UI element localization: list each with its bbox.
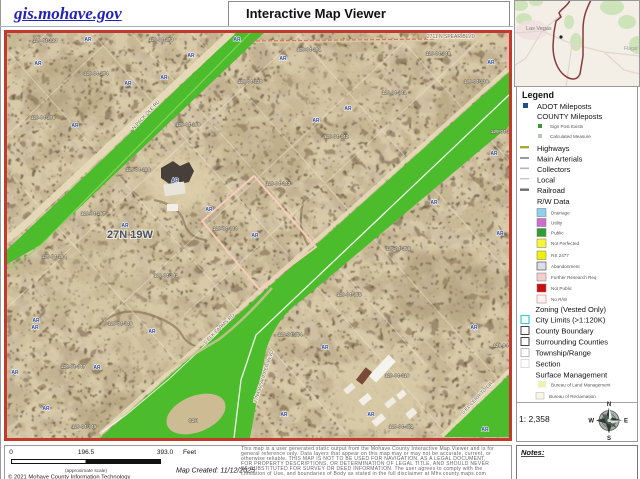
svg-text:Legend: Legend xyxy=(522,90,554,100)
svg-text:AR: AR xyxy=(171,178,179,184)
svg-text:0: 0 xyxy=(9,449,13,456)
svg-text:Highways: Highways xyxy=(537,144,570,153)
svg-text:129-04-342: 129-04-342 xyxy=(324,134,349,140)
svg-text:Zoning (Vested Only): Zoning (Vested Only) xyxy=(536,305,607,314)
svg-text:Bureau of Reclamation: Bureau of Reclamation xyxy=(549,394,596,399)
svg-text:Notes:: Notes: xyxy=(521,448,545,457)
svg-text:AR: AR xyxy=(367,412,375,418)
svg-text:Feet: Feet xyxy=(183,449,196,456)
svg-text:AR: AR xyxy=(205,207,213,213)
svg-text:AR: AR xyxy=(430,200,438,206)
svg-text:129-04-316: 129-04-316 xyxy=(385,373,410,379)
svg-text:129-04-274: 129-04-274 xyxy=(84,71,109,77)
svg-text:County Boundary: County Boundary xyxy=(536,327,594,336)
svg-text:Las Vegas: Las Vegas xyxy=(526,26,552,32)
svg-text:AR: AR xyxy=(470,325,478,331)
svg-text:129-04-230: 129-04-230 xyxy=(238,79,263,85)
svg-text:AR: AR xyxy=(124,81,132,87)
svg-text:Collectors: Collectors xyxy=(537,165,571,174)
svg-text:C2H: C2H xyxy=(188,418,198,424)
svg-text:N: N xyxy=(607,402,611,408)
svg-text:129-04-346: 129-04-346 xyxy=(108,321,133,327)
svg-text:AR: AR xyxy=(321,345,329,351)
svg-text:Not Perfected: Not Perfected xyxy=(551,241,580,246)
svg-text:AR: AR xyxy=(187,53,195,59)
svg-text:129-04-355: 129-04-355 xyxy=(337,292,362,298)
svg-text:Bureau of Land Management: Bureau of Land Management xyxy=(551,383,611,388)
svg-text:AR: AR xyxy=(344,106,352,112)
svg-text:129-04-349: 129-04-349 xyxy=(426,51,451,57)
svg-text:Local: Local xyxy=(537,176,555,185)
svg-text:AR: AR xyxy=(93,365,101,371)
svg-text:AR: AR xyxy=(280,412,288,418)
svg-text:196.5: 196.5 xyxy=(78,449,95,456)
svg-text:129-04-284: 129-04-284 xyxy=(42,254,67,260)
svg-text:2711 N SPEAR BLVD: 2711 N SPEAR BLVD xyxy=(427,34,476,40)
svg-text:129-04-291: 129-04-291 xyxy=(297,47,322,53)
svg-text:RS 2477: RS 2477 xyxy=(551,253,569,258)
svg-text:AR: AR xyxy=(84,37,92,43)
svg-text:129-04-354: 129-04-354 xyxy=(278,332,303,338)
svg-text:E: E xyxy=(624,419,628,425)
svg-text:Section: Section xyxy=(536,360,561,369)
svg-text:129-04-343: 129-04-343 xyxy=(266,181,291,187)
svg-text:R/W Data: R/W Data xyxy=(537,197,570,206)
svg-text:AR: AR xyxy=(312,118,320,124)
svg-text:Drainage: Drainage xyxy=(551,211,570,216)
svg-text:Railroad: Railroad xyxy=(537,186,565,195)
svg-text:AR: AR xyxy=(42,406,50,412)
svg-text:129-04-287: 129-04-287 xyxy=(81,211,106,217)
svg-text:27N 19W: 27N 19W xyxy=(107,229,153,241)
svg-text:129-04-341: 129-04-341 xyxy=(382,90,407,96)
svg-text:129-04-341: 129-04-341 xyxy=(154,273,179,279)
svg-text:AR: AR xyxy=(251,233,259,239)
svg-text:Surrounding Counties: Surrounding Counties xyxy=(536,338,609,347)
svg-text:(approximate scale): (approximate scale) xyxy=(65,468,108,474)
svg-text:129-04-401: 129-04-401 xyxy=(389,424,414,430)
svg-text:ADOT Mileposts: ADOT Mileposts xyxy=(537,102,592,111)
svg-text:Surface Management: Surface Management xyxy=(536,371,609,380)
svg-text:Township/Range: Township/Range xyxy=(536,349,591,358)
svg-text:Public: Public xyxy=(551,231,564,236)
svg-text:129-04-275: 129-04-275 xyxy=(31,115,56,121)
svg-text:AR: AR xyxy=(148,329,156,335)
svg-text:AR: AR xyxy=(160,75,168,81)
svg-text:129-04-280: 129-04-280 xyxy=(176,122,201,128)
svg-text:129-04-347: 129-04-347 xyxy=(61,364,86,370)
svg-text:129-04-356: 129-04-356 xyxy=(386,246,411,252)
svg-text:AR: AR xyxy=(121,223,129,229)
svg-text:Limitation of Use, and boundar: Limitation of Use, and boundaries of Bod… xyxy=(241,471,486,477)
svg-text:Main Arterials: Main Arterials xyxy=(537,155,583,164)
svg-text:393.0: 393.0 xyxy=(157,449,174,456)
svg-text:S: S xyxy=(607,436,611,442)
svg-text:129-04-345: 129-04-345 xyxy=(72,424,97,430)
svg-text:AR: AR xyxy=(233,37,241,43)
svg-text:1: 2,358: 1: 2,358 xyxy=(519,414,550,424)
svg-text:AR: AR xyxy=(481,427,489,433)
svg-text:City Limits (>1:120K): City Limits (>1:120K) xyxy=(536,316,606,325)
svg-text:COUNTY Mileposts: COUNTY Mileposts xyxy=(537,112,603,121)
svg-text:W: W xyxy=(588,419,594,425)
svg-text:AR: AR xyxy=(496,231,504,237)
svg-text:No R/W: No R/W xyxy=(551,297,568,302)
svg-text:Abandonment: Abandonment xyxy=(551,264,580,269)
svg-text:129-04-236: 129-04-236 xyxy=(464,79,489,85)
svg-text:Utility: Utility xyxy=(551,221,563,226)
svg-text:Flagst: Flagst xyxy=(624,46,638,52)
svg-text:AR: AR xyxy=(34,61,42,67)
svg-text:AR: AR xyxy=(71,123,79,129)
svg-text:AR: AR xyxy=(11,370,19,376)
svg-text:129-04-213: 129-04-213 xyxy=(33,38,58,44)
svg-text:AR: AR xyxy=(31,325,39,331)
svg-text:Sign Post Exists: Sign Post Exists xyxy=(550,124,584,129)
svg-text:Further Research Req: Further Research Req xyxy=(551,275,597,280)
svg-text:Calculated Measure: Calculated Measure xyxy=(550,134,591,139)
svg-text:129-04-273: 129-04-273 xyxy=(149,37,174,43)
svg-text:Not Public: Not Public xyxy=(551,286,573,291)
svg-text:129-04-236: 129-04-236 xyxy=(491,129,512,135)
svg-text:129-04-344: 129-04-344 xyxy=(213,226,238,232)
svg-text:129-04-286: 129-04-286 xyxy=(126,167,151,173)
svg-text:AR: AR xyxy=(490,151,498,157)
svg-text:AR: AR xyxy=(32,318,40,324)
svg-text:© 2021 Mohave County Informati: © 2021 Mohave County Information Technol… xyxy=(8,474,131,479)
svg-text:AR: AR xyxy=(279,56,287,62)
svg-text:AR: AR xyxy=(487,60,495,66)
